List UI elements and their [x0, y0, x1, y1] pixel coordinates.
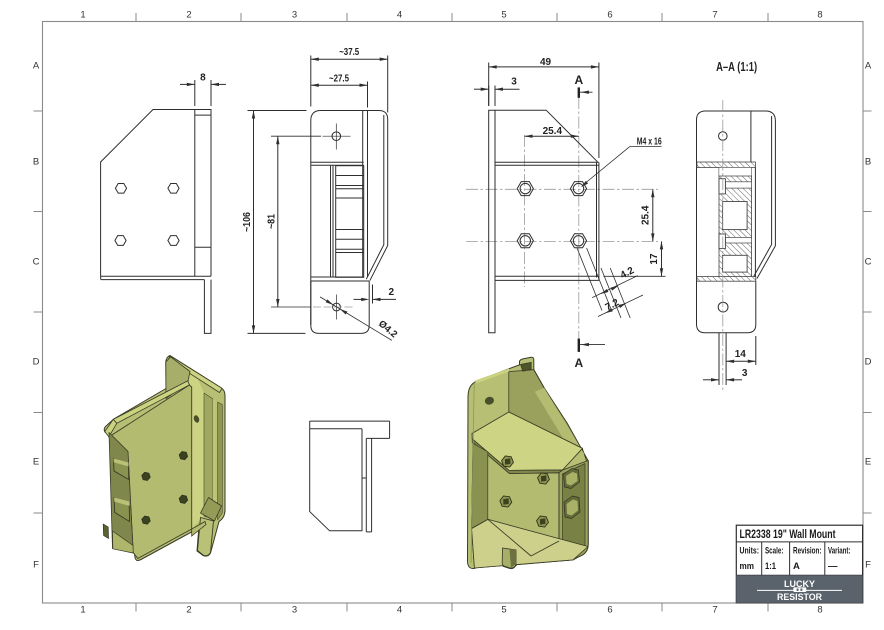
svg-text:25.4: 25.4 [641, 205, 652, 225]
svg-text:7: 7 [712, 605, 717, 616]
svg-text:8: 8 [817, 605, 822, 616]
svg-text:1:1: 1:1 [765, 561, 777, 572]
svg-text:F: F [33, 560, 39, 571]
svg-text:2: 2 [186, 10, 191, 21]
svg-text:Units:: Units: [740, 545, 760, 556]
svg-text:A: A [574, 356, 583, 370]
svg-text:A: A [574, 73, 583, 87]
svg-text:~27.5: ~27.5 [329, 73, 349, 84]
svg-text:Variant:: Variant: [828, 545, 851, 556]
svg-text:3: 3 [292, 605, 297, 616]
svg-text:E: E [33, 457, 39, 468]
svg-text:8: 8 [817, 10, 822, 21]
svg-text:8: 8 [200, 73, 206, 84]
svg-text:~106: ~106 [242, 212, 253, 232]
svg-text:14: 14 [735, 349, 747, 360]
svg-text:~81: ~81 [266, 214, 277, 229]
svg-text:17: 17 [649, 253, 660, 265]
svg-text:5: 5 [501, 10, 506, 21]
svg-text:E: E [865, 457, 871, 468]
svg-text:mm: mm [740, 561, 755, 572]
svg-text:49: 49 [540, 57, 552, 68]
svg-text:4: 4 [397, 605, 402, 616]
svg-text:D: D [33, 357, 40, 368]
svg-text:LR2338 19" Wall Mount: LR2338 19" Wall Mount [740, 529, 836, 541]
svg-text:B: B [33, 157, 39, 168]
svg-text:3: 3 [511, 77, 517, 88]
svg-text:RESISTOR: RESISTOR [777, 592, 822, 603]
svg-text:3: 3 [742, 368, 748, 379]
svg-text:Scale:: Scale: [765, 545, 784, 556]
svg-text:~37.5: ~37.5 [339, 47, 359, 58]
svg-text:C: C [865, 257, 872, 268]
svg-text:6: 6 [607, 10, 612, 21]
svg-text:D: D [865, 357, 872, 368]
svg-text:4: 4 [397, 10, 402, 21]
svg-text:1: 1 [80, 10, 85, 21]
svg-text:A: A [865, 61, 872, 72]
svg-text:B: B [865, 157, 871, 168]
svg-text:—: — [828, 561, 838, 572]
svg-text:5: 5 [501, 605, 506, 616]
svg-text:2: 2 [186, 605, 191, 616]
svg-text:A: A [793, 561, 800, 572]
svg-text:1: 1 [80, 605, 85, 616]
svg-text:Revision:: Revision: [793, 545, 822, 556]
svg-text:A–A (1:1): A–A (1:1) [716, 60, 757, 74]
svg-text:F: F [865, 560, 871, 571]
svg-text:3: 3 [292, 10, 297, 21]
svg-text:A: A [33, 61, 40, 72]
svg-text:2: 2 [389, 287, 395, 298]
svg-text:M4 x 16: M4 x 16 [637, 137, 662, 148]
svg-text:C: C [33, 257, 40, 268]
svg-text:6: 6 [607, 605, 612, 616]
svg-text:25.4: 25.4 [543, 126, 563, 137]
svg-text:7: 7 [712, 10, 717, 21]
